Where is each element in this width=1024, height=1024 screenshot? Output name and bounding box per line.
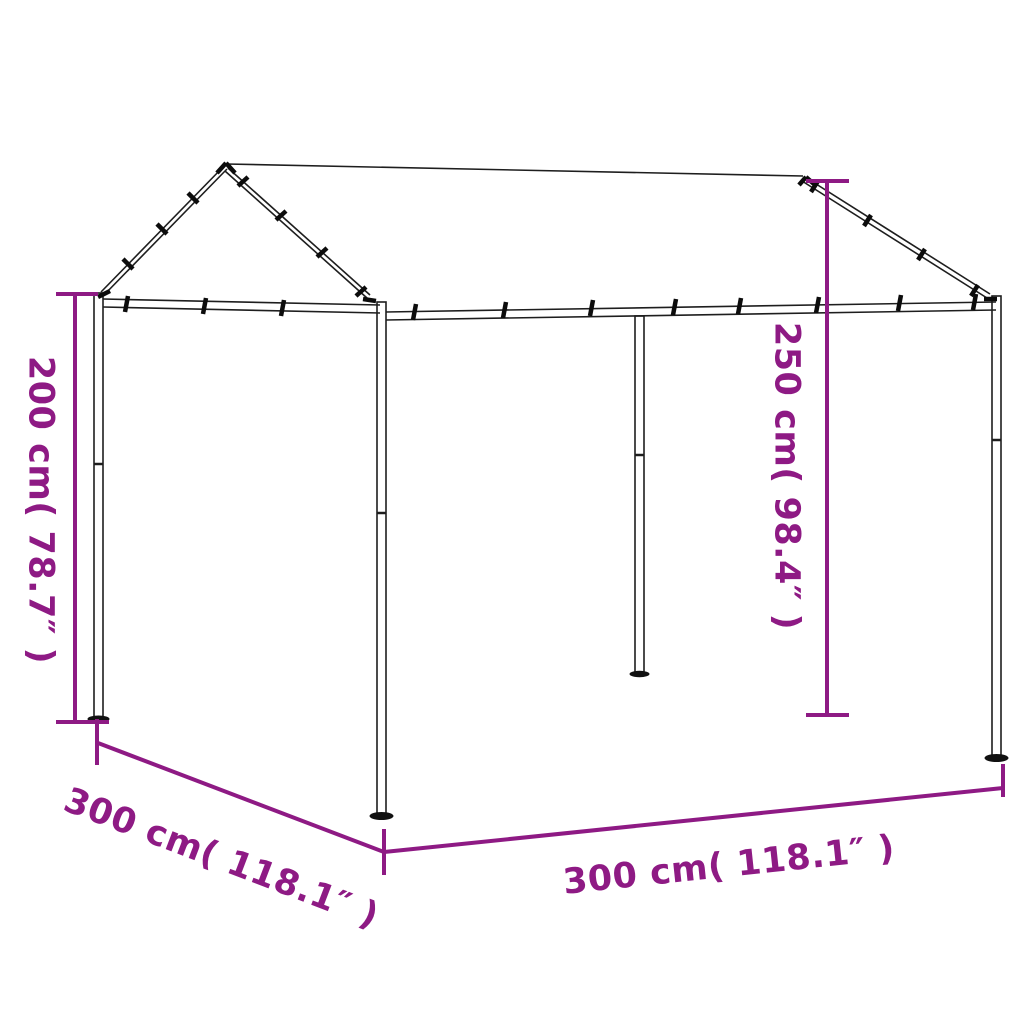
foot-back-right [630, 671, 650, 677]
corner-elbow [98, 291, 110, 297]
rafter-clamps [98, 163, 997, 301]
front-eave-beam [386, 302, 996, 312]
posts [94, 293, 1001, 815]
ridge-line [226, 164, 803, 176]
corner-elbow [363, 299, 376, 301]
height-left-label: 200 cm( 78.7″ ) [23, 356, 58, 664]
post-front-left [377, 302, 386, 815]
foot-front-left [370, 812, 394, 820]
foot-front-right [985, 754, 1009, 762]
post-front-right [992, 296, 1001, 756]
height-right-label: 250 cm( 98.4″ ) [769, 322, 804, 630]
post-back-left [94, 293, 103, 718]
front-eave-beam [386, 310, 996, 320]
roof-frame [101, 164, 990, 298]
gable-right-rafter [228, 168, 370, 295]
eave-beams [103, 299, 996, 320]
post-feet [88, 671, 1009, 820]
beam-clamps [125, 294, 976, 320]
left-eave-beam [103, 307, 380, 313]
rear-gable-rafter [805, 177, 990, 294]
dimension-diagram: 200 cm( 78.7″ ) 250 cm( 98.4″ ) 300 cm( … [0, 0, 1024, 1024]
dimension-lines [56, 181, 1003, 875]
left-eave-beam [103, 299, 380, 305]
gable-right-rafter [225, 171, 367, 298]
width-dim-line [384, 788, 1003, 852]
post-back-right [635, 316, 644, 673]
rear-gable-rafter [802, 181, 987, 298]
